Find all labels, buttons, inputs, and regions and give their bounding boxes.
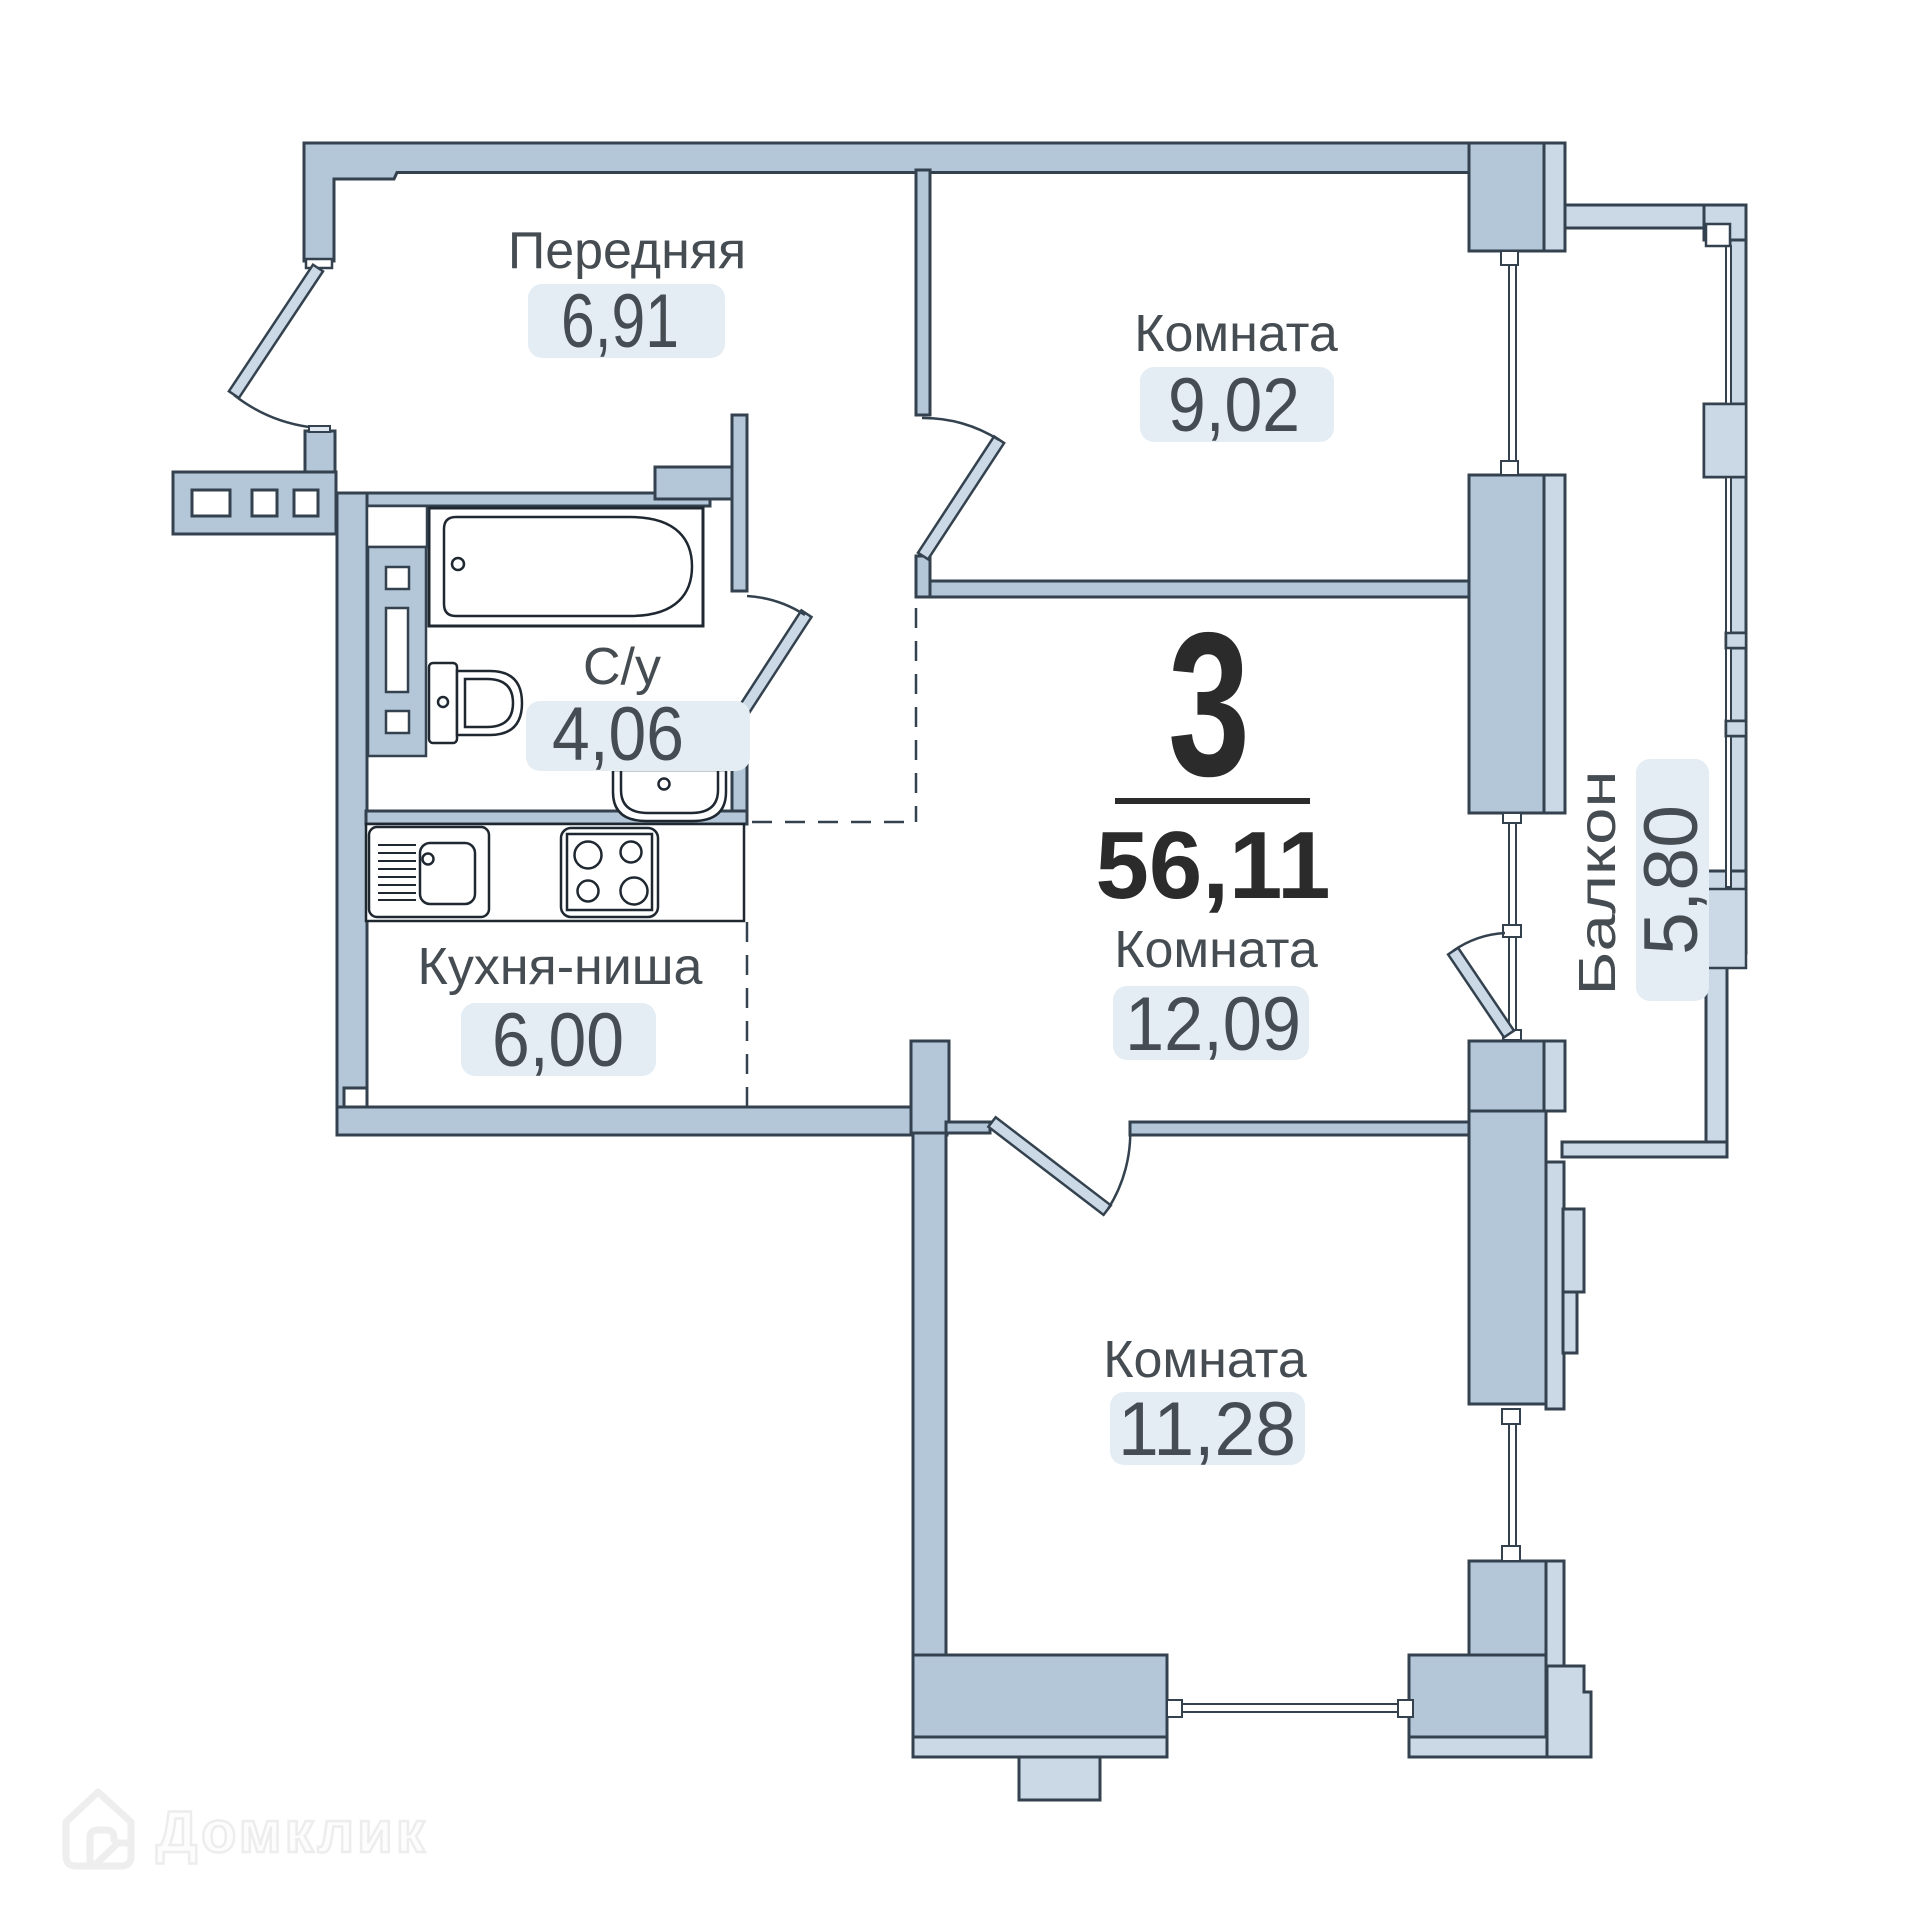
svg-text:Комната: Комната (1114, 921, 1318, 979)
svg-text:С/у: С/у (583, 638, 661, 696)
svg-text:6,00: 6,00 (492, 998, 624, 1083)
svg-text:9,02: 9,02 (1168, 363, 1300, 448)
svg-text:12,09: 12,09 (1125, 982, 1301, 1067)
svg-text:5,80: 5,80 (1629, 805, 1714, 955)
svg-text:56,11: 56,11 (1096, 812, 1331, 919)
svg-text:3: 3 (1168, 590, 1250, 819)
svg-text:Передняя: Передняя (508, 222, 746, 280)
svg-text:Домклик: Домклик (156, 1800, 428, 1865)
svg-text:11,28: 11,28 (1118, 1387, 1296, 1472)
svg-text:Балкон: Балкон (1569, 771, 1627, 996)
svg-text:Кухня-ниша: Кухня-ниша (418, 938, 703, 996)
svg-text:Комната: Комната (1103, 1331, 1307, 1389)
svg-text:4,06: 4,06 (552, 692, 684, 777)
svg-text:6,91: 6,91 (561, 279, 679, 364)
svg-text:Комната: Комната (1134, 305, 1338, 363)
